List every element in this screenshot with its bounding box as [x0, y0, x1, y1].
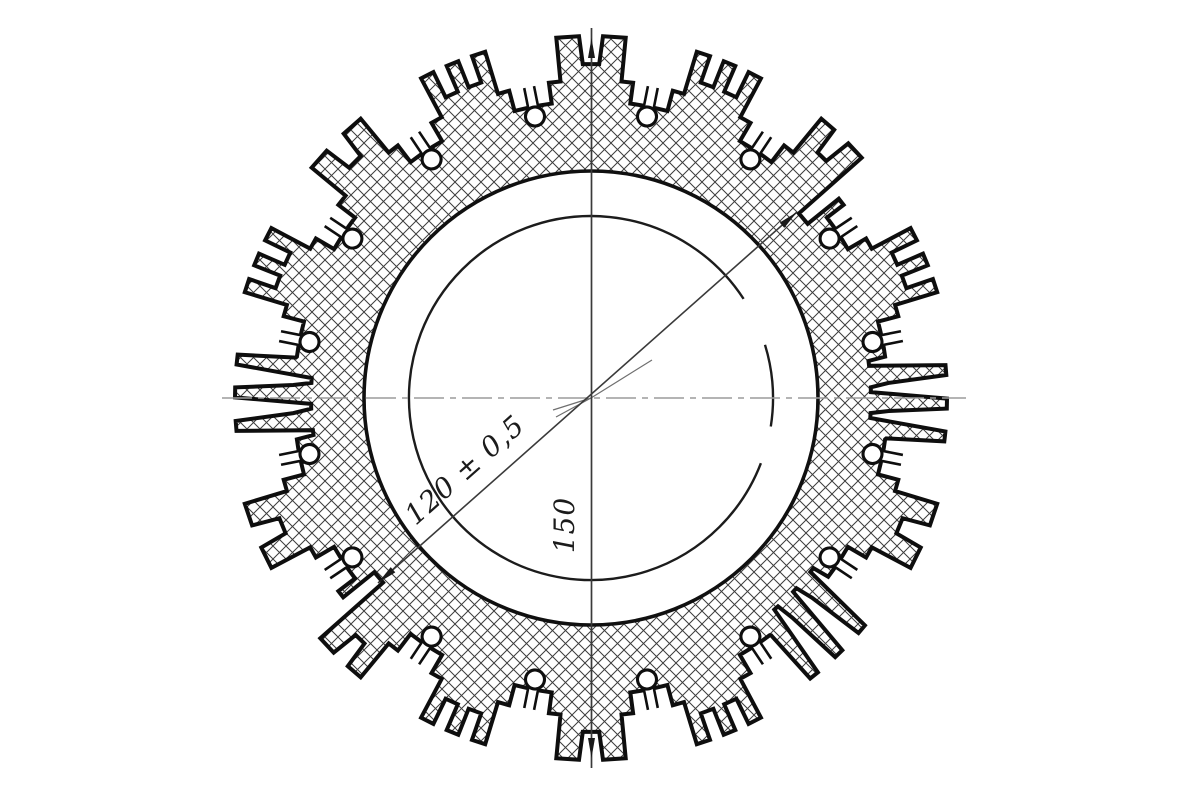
dimension-arrowhead [588, 738, 595, 758]
dimension-arrowhead [588, 38, 595, 58]
dim-label-height: 150 [548, 497, 581, 553]
drawing-canvas: 120 ± 0,5 150 [0, 0, 1200, 800]
technical-drawing: 120 ± 0,5 150 [0, 0, 1200, 800]
